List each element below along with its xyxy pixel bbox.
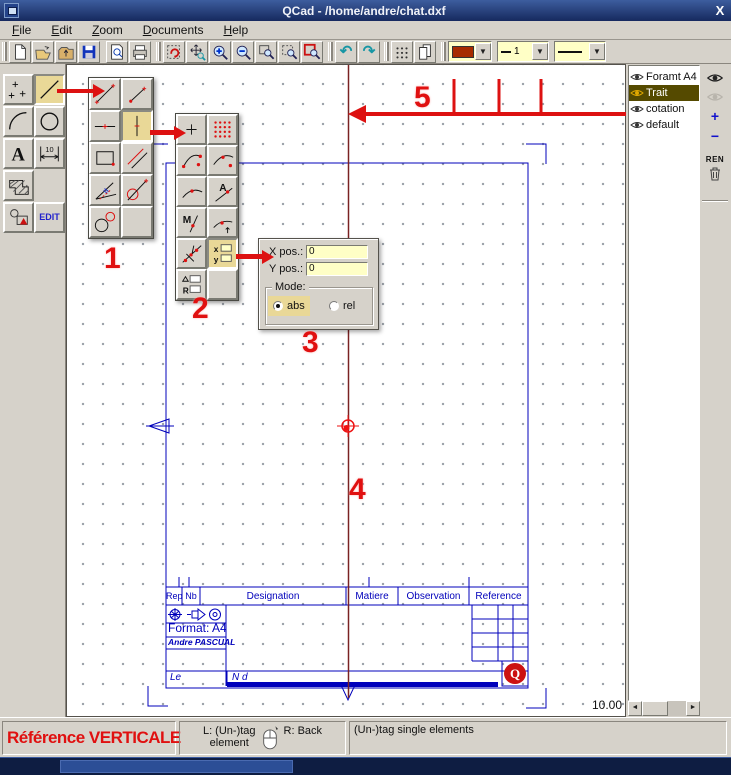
snap-intersection-button[interactable] — [176, 238, 207, 269]
import-icon — [57, 43, 75, 61]
open-file-icon — [34, 43, 52, 61]
eye-icon — [630, 120, 644, 130]
import-button[interactable] — [55, 41, 77, 63]
redraw-icon — [165, 43, 183, 61]
x-pos-label: X pos.: — [269, 246, 303, 258]
header-observation: Observation — [398, 591, 469, 602]
eye-icon — [630, 104, 644, 114]
scroll-left-button[interactable]: ◄ — [628, 701, 642, 716]
layer-name: Trait — [646, 87, 668, 99]
layer-row-trait[interactable]: Trait — [629, 85, 699, 101]
titleblock-date-label: Le — [170, 672, 181, 683]
redo-button[interactable]: ↷ — [358, 41, 380, 63]
pen-width-value: 1 — [514, 46, 520, 57]
show-layer-button[interactable] — [702, 72, 728, 84]
snap-middle-icon — [179, 179, 204, 204]
header-nb: Nb — [182, 591, 200, 601]
eye-icon — [630, 72, 644, 82]
toolbar-handle[interactable] — [2, 42, 6, 61]
zoom-previous-icon — [303, 43, 321, 61]
annotation-arrow-2-line — [150, 130, 175, 135]
line-tangent-two-circles-button[interactable] — [89, 206, 121, 238]
pan-zoom-button[interactable] — [186, 41, 208, 63]
delete-layer-button[interactable] — [702, 166, 728, 182]
layer-list-button[interactable] — [414, 41, 436, 63]
menu-documents[interactable]: Documents — [135, 22, 212, 38]
titlebar: QCad - /home/andre/chat.dxf X — [0, 0, 731, 21]
svg-text:A: A — [12, 145, 26, 165]
snap-point-marker — [337, 415, 359, 437]
dimensions-tool-button[interactable]: 10 — [34, 138, 65, 169]
step-number-1: 1 — [104, 242, 121, 276]
pen-color-swatch — [452, 46, 474, 58]
close-button[interactable]: X — [709, 3, 731, 18]
x-pos-input[interactable]: 0 — [306, 245, 368, 259]
titleblock-number-label: N d — [232, 672, 248, 683]
layer-row-format-a4[interactable]: Foramt A4 — [629, 69, 699, 85]
system-menu-icon[interactable] — [4, 3, 19, 18]
save-button[interactable] — [78, 41, 100, 63]
line-vertical-button[interactable] — [121, 110, 153, 142]
zoom-out-button[interactable] — [232, 41, 254, 63]
titleblock-format: Format: A4 — [168, 621, 227, 635]
abs-radio-label: abs — [287, 300, 305, 312]
mouse-left-hint-line1: L: (Un-)tag — [203, 725, 256, 737]
pen-width-sample — [501, 51, 511, 53]
mode-groupbox: Mode: abs rel — [265, 287, 373, 325]
titleblock-author: Andre PASCUAL — [168, 637, 235, 647]
snap-on-entity-icon — [210, 148, 235, 173]
toolbar-handle[interactable] — [441, 42, 445, 61]
grid-spacing-value: 10.00 — [567, 698, 622, 712]
layer-list-hscrollbar[interactable]: ◄ ► — [628, 701, 700, 716]
undo-button[interactable]: ↶ — [335, 41, 357, 63]
eye-icon — [630, 88, 644, 98]
print-preview-icon — [108, 43, 126, 61]
open-file-button[interactable] — [32, 41, 54, 63]
qcad-logo: Q — [504, 663, 526, 684]
zoom-auto-button[interactable] — [278, 41, 300, 63]
save-icon — [80, 43, 98, 61]
pan-zoom-icon — [188, 43, 206, 61]
window-resize-segment — [60, 760, 293, 773]
line-point-angle-button[interactable] — [121, 78, 153, 110]
circle-icon — [37, 109, 62, 134]
chevron-down-icon[interactable]: ▼ — [532, 43, 548, 60]
chevron-down-icon[interactable]: ▼ — [589, 43, 605, 60]
sheet-center-marks — [146, 419, 355, 700]
line-bisector-icon — [92, 177, 118, 203]
layers-icon — [416, 43, 434, 61]
grid-toggle-button[interactable] — [391, 41, 413, 63]
mode-label: Mode: — [272, 281, 309, 293]
header-rep: Rep — [166, 591, 182, 601]
snap-endpoints-button[interactable] — [176, 145, 207, 176]
titleblock-thick-line — [227, 682, 498, 687]
layer-list[interactable]: Foramt A4 Trait cotation default — [628, 65, 700, 701]
svg-text:10: 10 — [45, 145, 53, 154]
menu-zoom[interactable]: Zoom — [84, 22, 131, 38]
snap-manual-icon: M — [179, 210, 204, 235]
step-number-5: 5 — [414, 81, 431, 115]
line-vertical-icon — [124, 113, 150, 139]
mouse-right-hint: R: Back — [284, 725, 323, 737]
arc-icon — [6, 109, 31, 134]
layer-name: default — [646, 119, 679, 131]
palette-empty-cell — [121, 206, 153, 238]
circles-tool-button[interactable] — [34, 106, 65, 137]
svg-text:R: R — [183, 285, 189, 295]
status-command-text: Référence VERTICALE — [3, 722, 175, 754]
status-action-text: (Un-)tag single elements — [354, 724, 722, 736]
status-mouse-panel: L: (Un-)tag element R: Back — [179, 721, 346, 755]
line-parallel-icon — [124, 145, 150, 171]
layer-row-default[interactable]: default — [629, 117, 699, 133]
mouse-left-hint-line2: element — [203, 737, 256, 749]
text-icon: A — [6, 141, 31, 166]
annotation-arrow-1-line — [57, 89, 93, 93]
zoom-window-button[interactable] — [255, 41, 277, 63]
snap-distance-icon — [210, 210, 235, 235]
snap-manual-button[interactable]: M — [176, 207, 207, 238]
svg-text:x: x — [214, 244, 219, 254]
annotation-arrow-3-head — [262, 250, 274, 264]
layer-row-cotation[interactable]: cotation — [629, 101, 699, 117]
hatch-icon — [6, 173, 31, 198]
menu-help[interactable]: Help — [215, 22, 256, 38]
snap-xy-icon: xy — [210, 241, 235, 266]
snap-intersection-icon — [179, 241, 204, 266]
layer-name: Foramt A4 — [646, 71, 697, 83]
zoom-out-icon — [234, 43, 252, 61]
annotation-arrow-5 — [348, 79, 627, 123]
add-layer-button[interactable]: + — [702, 108, 728, 124]
zoom-previous-button[interactable] — [301, 41, 323, 63]
menubar: File Edit Zoom Documents Help — [0, 21, 731, 40]
hatches-tool-button[interactable] — [3, 170, 34, 201]
line-bisector-button[interactable] — [89, 174, 121, 206]
zoom-auto-icon — [280, 43, 298, 61]
dimension-icon: 10 — [37, 141, 62, 166]
line-point-angle-icon — [124, 81, 150, 107]
divider — [702, 200, 728, 202]
print-icon — [131, 43, 149, 61]
y-pos-label: Y pos.: — [269, 263, 303, 275]
header-matiere: Matiere — [346, 591, 398, 602]
toolbar-handle[interactable] — [328, 42, 332, 61]
rel-radio-label: rel — [343, 300, 355, 312]
rectangle-icon — [92, 145, 118, 171]
main-toolbar: ↶ ↷ ▼ 1 ▼ ▼ — [0, 40, 731, 64]
menu-file[interactable]: File — [4, 22, 39, 38]
edit-mode-label: EDIT — [37, 205, 62, 229]
grid-icon — [393, 43, 411, 61]
texts-tool-button[interactable]: A — [3, 138, 34, 169]
line-horizontal-icon — [92, 113, 118, 139]
points-icon — [6, 77, 31, 102]
coordinate-dialog: X pos.: 0 Y pos.: 0 Mode: abs rel — [258, 238, 379, 330]
points-tool-button[interactable] — [3, 74, 34, 105]
snap-auto-icon: A — [210, 179, 235, 204]
print-preview-button[interactable] — [106, 41, 128, 63]
snap-grid-icon — [210, 117, 235, 142]
snap-middle-button[interactable] — [176, 176, 207, 207]
undo-icon: ↶ — [337, 43, 355, 61]
toolbar-handle[interactable] — [384, 42, 388, 61]
window-bottom-border — [0, 757, 731, 775]
eye-closed-icon — [706, 91, 724, 103]
print-button[interactable] — [129, 41, 151, 63]
snap-xy-button[interactable]: xy — [207, 238, 238, 269]
tag-elements-tool-button[interactable] — [3, 202, 34, 233]
abs-radio-circle[interactable] — [273, 301, 283, 311]
step-number-2: 2 — [192, 292, 209, 326]
zoom-window-icon — [257, 43, 275, 61]
window-title: QCad - /home/andre/chat.dxf — [19, 4, 709, 18]
redo-icon: ↷ — [360, 43, 378, 61]
eye-icon — [706, 72, 724, 84]
new-document-button[interactable] — [9, 41, 31, 63]
header-reference: Reference — [469, 591, 528, 602]
snap-tools-palette: A M xy R — [175, 113, 239, 301]
redraw-button[interactable] — [163, 41, 185, 63]
edit-mode-button[interactable]: EDIT — [34, 202, 65, 233]
statusbar: Référence VERTICALE L: (Un-)tag element … — [0, 717, 731, 757]
rel-radio[interactable]: rel — [324, 296, 360, 316]
rectangle-button[interactable] — [89, 142, 121, 174]
projection-symbols-icon — [167, 607, 225, 622]
layer-panel: Foramt A4 Trait cotation default ◄ ► + −… — [626, 64, 731, 717]
snap-on-entity-button[interactable] — [207, 145, 238, 176]
pen-width-combo[interactable]: 1 ▼ — [497, 41, 549, 62]
line-horizontal-button[interactable] — [89, 110, 121, 142]
step-number-4: 4 — [349, 473, 366, 507]
qcad-window: QCad - /home/andre/chat.dxf X File Edit … — [0, 0, 731, 775]
svg-text:y: y — [214, 254, 219, 264]
scroll-right-button[interactable]: ► — [686, 701, 700, 716]
snap-auto-button[interactable]: A — [207, 176, 238, 207]
step-number-3: 3 — [302, 326, 319, 360]
titleblock-header-row: Rep Nb Designation Matiere Observation R… — [166, 588, 528, 604]
pen-style-sample — [558, 51, 582, 53]
hide-layer-button[interactable] — [702, 91, 728, 103]
chevron-down-icon[interactable]: ▼ — [475, 43, 491, 60]
new-document-icon — [11, 43, 29, 61]
snap-grid-button[interactable] — [207, 114, 238, 145]
line-tangent-two-circles-icon — [92, 209, 118, 235]
pen-style-combo[interactable]: ▼ — [554, 41, 606, 62]
zoom-in-button[interactable] — [209, 41, 231, 63]
trash-icon — [707, 166, 723, 182]
pen-color-combo[interactable]: ▼ — [448, 41, 492, 62]
scrollbar-thumb[interactable] — [642, 701, 668, 716]
toolbar-handle[interactable] — [156, 42, 160, 61]
annotation-arrow-1-head — [93, 84, 105, 98]
annotation-arrow-2-head — [174, 126, 186, 140]
rel-radio-circle[interactable] — [329, 301, 339, 311]
header-designation: Designation — [200, 591, 346, 602]
line-tools-palette — [88, 77, 154, 239]
mouse-icon — [261, 725, 279, 751]
tag-elements-icon — [6, 205, 31, 230]
arcs-tool-button[interactable] — [3, 106, 34, 137]
status-action-panel: (Un-)tag single elements — [349, 721, 727, 755]
snap-endpoints-icon — [179, 148, 204, 173]
status-command-panel: Référence VERTICALE — [2, 721, 176, 755]
menu-edit[interactable]: Edit — [43, 22, 80, 38]
svg-text:M: M — [183, 215, 191, 226]
remove-layer-button[interactable]: − — [702, 128, 728, 144]
line-parallel-button[interactable] — [121, 142, 153, 174]
palette-empty-cell — [207, 269, 238, 300]
annotation-arrow-3-line — [236, 254, 263, 259]
layer-name: cotation — [646, 103, 685, 115]
zoom-in-icon — [211, 43, 229, 61]
line-tangent-point-circle-icon — [124, 177, 150, 203]
abs-radio[interactable]: abs — [268, 296, 310, 316]
snap-distance-button[interactable] — [207, 207, 238, 238]
tool-panel: A 10 EDIT — [0, 64, 66, 717]
line-tangent-point-circle-button[interactable] — [121, 174, 153, 206]
y-pos-input[interactable]: 0 — [306, 262, 368, 276]
scrollbar-track[interactable] — [668, 701, 686, 716]
